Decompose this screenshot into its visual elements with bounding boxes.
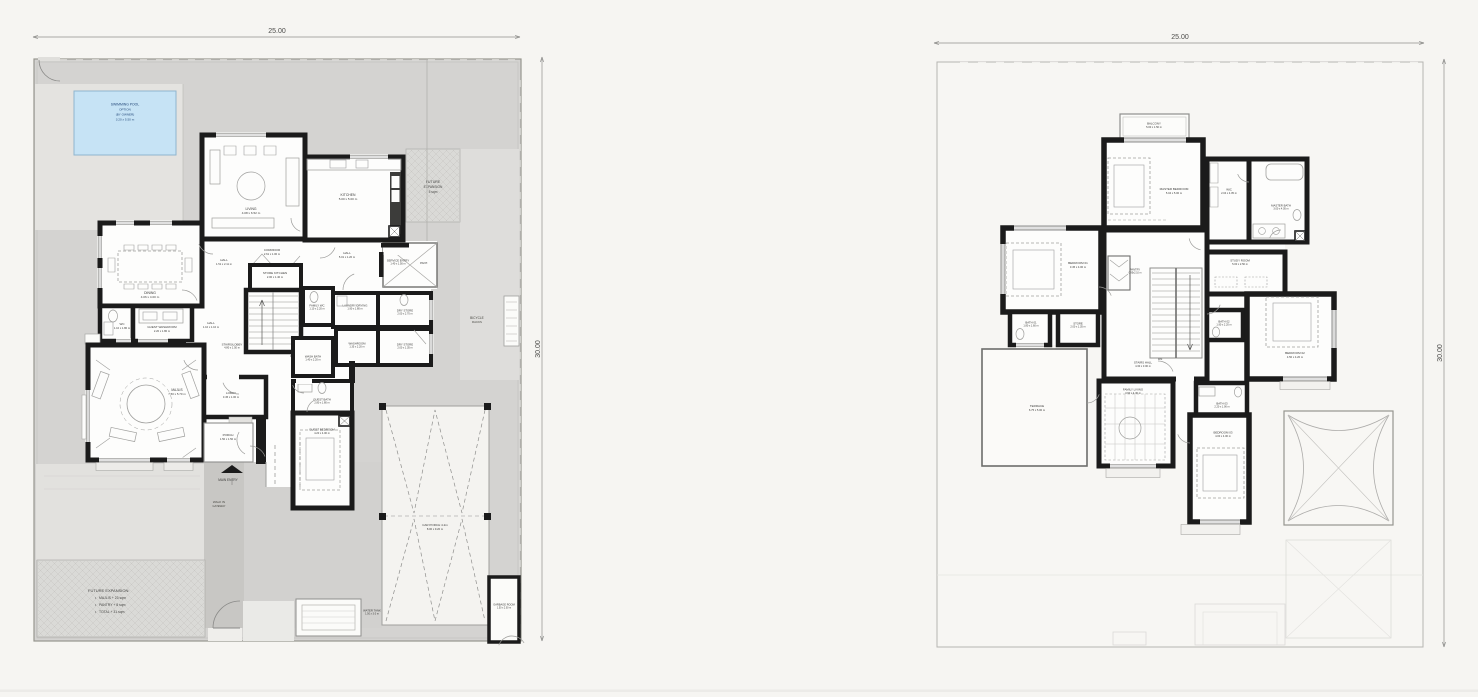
svg-text:• MAJLIS + 23 sqm: • MAJLIS + 23 sqm [95, 596, 126, 600]
svg-text:1.40 x 2.20 m: 1.40 x 2.20 m [305, 359, 320, 362]
svg-text:• PANTRY + 8 sqm: • PANTRY + 8 sqm [95, 603, 126, 607]
svg-text:TERRACE: TERRACE [1030, 404, 1044, 408]
svg-text:25.00: 25.00 [268, 28, 286, 35]
svg-text:BALCONY: BALCONY [1147, 121, 1161, 125]
svg-text:30.00: 30.00 [535, 340, 542, 358]
svg-text:2.00 x 1.40 m: 2.00 x 1.40 m [267, 275, 284, 279]
svg-text:1.80 x 1.60 m: 1.80 x 1.60 m [1023, 325, 1038, 328]
svg-text:GATEWAY: GATEWAY [213, 504, 226, 508]
svg-text:2.20 x 1.90 m: 2.20 x 1.90 m [1214, 406, 1229, 409]
svg-text:3.00 x 4.05 m: 3.00 x 4.05 m [1273, 208, 1288, 211]
svg-text:FAMILY LIVING: FAMILY LIVING [1123, 387, 1144, 391]
svg-text:BATH 02: BATH 02 [1218, 319, 1230, 323]
svg-text:HALL: HALL [343, 251, 351, 255]
svg-text:GARBAGE ROOM: GARBAGE ROOM [493, 602, 515, 606]
svg-text:BEDROOM 02: BEDROOM 02 [1285, 351, 1305, 355]
svg-text:FUTURE: FUTURE [426, 180, 441, 184]
svg-text:MASTER BEDROOM: MASTER BEDROOM [1160, 187, 1189, 191]
svg-text:3.45 x 1.00 m: 3.45 x 1.00 m [223, 395, 240, 399]
svg-text:1.50 x 3.0 m: 1.50 x 3.0 m [365, 613, 379, 616]
svg-text:2.00 x 1.35 m: 2.00 x 1.35 m [397, 347, 412, 350]
svg-text:SWIMMING POOL: SWIMMING POOL [111, 103, 140, 107]
svg-text:WATER TANK: WATER TANK [363, 608, 381, 612]
svg-text:FAMILY WC: FAMILY WC [309, 303, 324, 307]
svg-text:30.00: 30.00 [1437, 344, 1444, 362]
svg-text:BATH 01: BATH 01 [1025, 320, 1037, 324]
svg-text:PANT.: PANT. [420, 261, 428, 265]
svg-text:BICYCLE: BICYCLE [470, 316, 484, 320]
svg-text:3.20 x 5.50 m: 3.20 x 5.50 m [116, 118, 135, 122]
svg-text:• TOTAL + 31 sqm: • TOTAL + 31 sqm [95, 610, 125, 614]
svg-text:STAIRS HALL: STAIRS HALL [1134, 360, 1153, 364]
svg-text:4.00 x 4.00 m: 4.00 x 4.00 m [1215, 434, 1231, 438]
svg-text:1.10 x 1.80 m: 1.10 x 1.80 m [114, 326, 131, 330]
svg-text:2.00 x 1.35 m: 2.00 x 1.35 m [1070, 326, 1085, 329]
svg-text:PORCH: PORCH [223, 433, 234, 437]
svg-text:3.90 x 4.30 m: 3.90 x 4.30 m [1125, 391, 1141, 395]
svg-text:DRY STORE: DRY STORE [397, 342, 413, 346]
svg-text:4.06 x 4.00 m: 4.06 x 4.00 m [141, 295, 160, 299]
svg-text:CORRIDOR: CORRIDOR [264, 248, 281, 252]
svg-text:5 sqm: 5 sqm [429, 190, 438, 194]
svg-text:WALK IN: WALK IN [213, 500, 225, 504]
svg-text:SERVICE ENTRY: SERVICE ENTRY [387, 258, 410, 262]
svg-text:1.35 x 2.20 m: 1.35 x 2.20 m [349, 346, 364, 349]
svg-text:1.90 x 2.20 m: 1.90 x 2.20 m [1216, 324, 1231, 327]
svg-text:BEDROOM 01: BEDROOM 01 [1068, 261, 1088, 265]
svg-text:DN: DN [1158, 357, 1162, 361]
svg-text:0.95x2.10 m: 0.95x2.10 m [1129, 273, 1142, 275]
svg-text:WASH BATH: WASH BATH [305, 354, 321, 358]
svg-text:3.45 x 4.00 m: 3.45 x 4.00 m [1070, 265, 1087, 269]
svg-text:2.20 x 1.80 m: 2.20 x 1.80 m [154, 329, 171, 333]
svg-text:1.51 x 2.11 m: 1.51 x 2.11 m [216, 262, 233, 266]
svg-text:1.90 x 1.80 m: 1.90 x 1.80 m [347, 308, 362, 311]
svg-text:CAR PORCH 4.2m: CAR PORCH 4.2m [422, 523, 448, 527]
svg-text:2.61 x 1.00 m: 2.61 x 1.00 m [264, 252, 281, 256]
svg-text:7.50 x 5.70 m: 7.50 x 5.70 m [168, 392, 186, 396]
svg-text:STUDY ROOM: STUDY ROOM [1230, 258, 1250, 262]
svg-text:6.75 x 5.00 m: 6.75 x 5.00 m [1029, 408, 1046, 412]
svg-text:5.00 x 2.50 m: 5.00 x 2.50 m [1232, 262, 1248, 266]
svg-text:1.10 x 1.10 m: 1.10 x 1.10 m [203, 325, 220, 329]
svg-text:MASTER BATH: MASTER BATH [1271, 203, 1291, 207]
svg-text:GUEST WASHROOM: GUEST WASHROOM [147, 325, 177, 329]
svg-text:STAIRS/LOBBY: STAIRS/LOBBY [222, 342, 243, 346]
svg-text:GUEST BEDROOM: GUEST BEDROOM [309, 427, 335, 431]
svg-text:1.50 x 2.00 m: 1.50 x 2.00 m [497, 608, 511, 610]
svg-text:BATH 03: BATH 03 [1216, 401, 1228, 405]
svg-text:1.40 x 1.50 m: 1.40 x 1.50 m [390, 263, 405, 266]
svg-text:4.08 x 6.52 m: 4.08 x 6.52 m [242, 211, 261, 215]
svg-text:STORE: STORE [1073, 321, 1083, 325]
svg-text:STORE KITCHEN: STORE KITCHEN [263, 271, 287, 275]
svg-text:WIC: WIC [1226, 187, 1232, 191]
svg-text:RACKS: RACKS [472, 320, 482, 324]
svg-text:4.30 x 3.00 m: 4.30 x 3.00 m [1135, 364, 1151, 368]
svg-text:DRY STORE: DRY STORE [397, 308, 413, 312]
svg-text:5.00 x 5.00 m: 5.00 x 5.00 m [339, 197, 358, 201]
svg-text:LAUNDRY/DRYING: LAUNDRY/DRYING [343, 303, 368, 307]
svg-text:1.50 x 1.50 m: 1.50 x 1.50 m [220, 437, 237, 441]
svg-text:1.10 x 2.20 m: 1.10 x 2.20 m [309, 308, 324, 311]
svg-text:MAIN ENTRY: MAIN ENTRY [218, 478, 238, 482]
svg-text:HALL: HALL [220, 258, 228, 262]
svg-text:FUTURE EXPANSION:: FUTURE EXPANSION: [88, 588, 130, 593]
svg-text:OPTION: OPTION [119, 108, 131, 112]
svg-text:4.50 x 4.20 m: 4.50 x 4.20 m [1287, 355, 1304, 359]
svg-text:5.01 x 1.20 m: 5.01 x 1.20 m [339, 255, 356, 259]
svg-text:HALL: HALL [207, 321, 215, 325]
svg-text:WC: WC [120, 322, 126, 326]
svg-text:5.04 x 5.00 m: 5.04 x 5.00 m [1166, 191, 1183, 195]
svg-text:8.00 x 9.20 m: 8.00 x 9.20 m [427, 527, 444, 531]
svg-text:5.00 x 1.50 m: 5.00 x 1.50 m [1146, 125, 1162, 129]
svg-text:(BY OWNER): (BY OWNER) [116, 113, 135, 117]
svg-text:4.80 x 1.50 m: 4.80 x 1.50 m [224, 346, 240, 350]
svg-text:2.00 x 2.70 m: 2.00 x 2.70 m [397, 313, 412, 316]
svg-text:PANTRY: PANTRY [1130, 267, 1141, 271]
svg-text:2.04 x 4.05 m: 2.04 x 4.05 m [1221, 191, 1237, 195]
svg-text:25.00: 25.00 [1171, 34, 1189, 41]
svg-text:2.80 x 1.80 m: 2.80 x 1.80 m [314, 402, 329, 405]
svg-text:4.20 x 4.00 m: 4.20 x 4.00 m [314, 431, 330, 435]
svg-text:EXPANSION: EXPANSION [424, 185, 443, 189]
svg-text:GUEST BATH: GUEST BATH [313, 397, 331, 401]
svg-text:BEDROOM 03: BEDROOM 03 [1214, 430, 1233, 434]
svg-text:WASHROOM: WASHROOM [349, 341, 367, 345]
